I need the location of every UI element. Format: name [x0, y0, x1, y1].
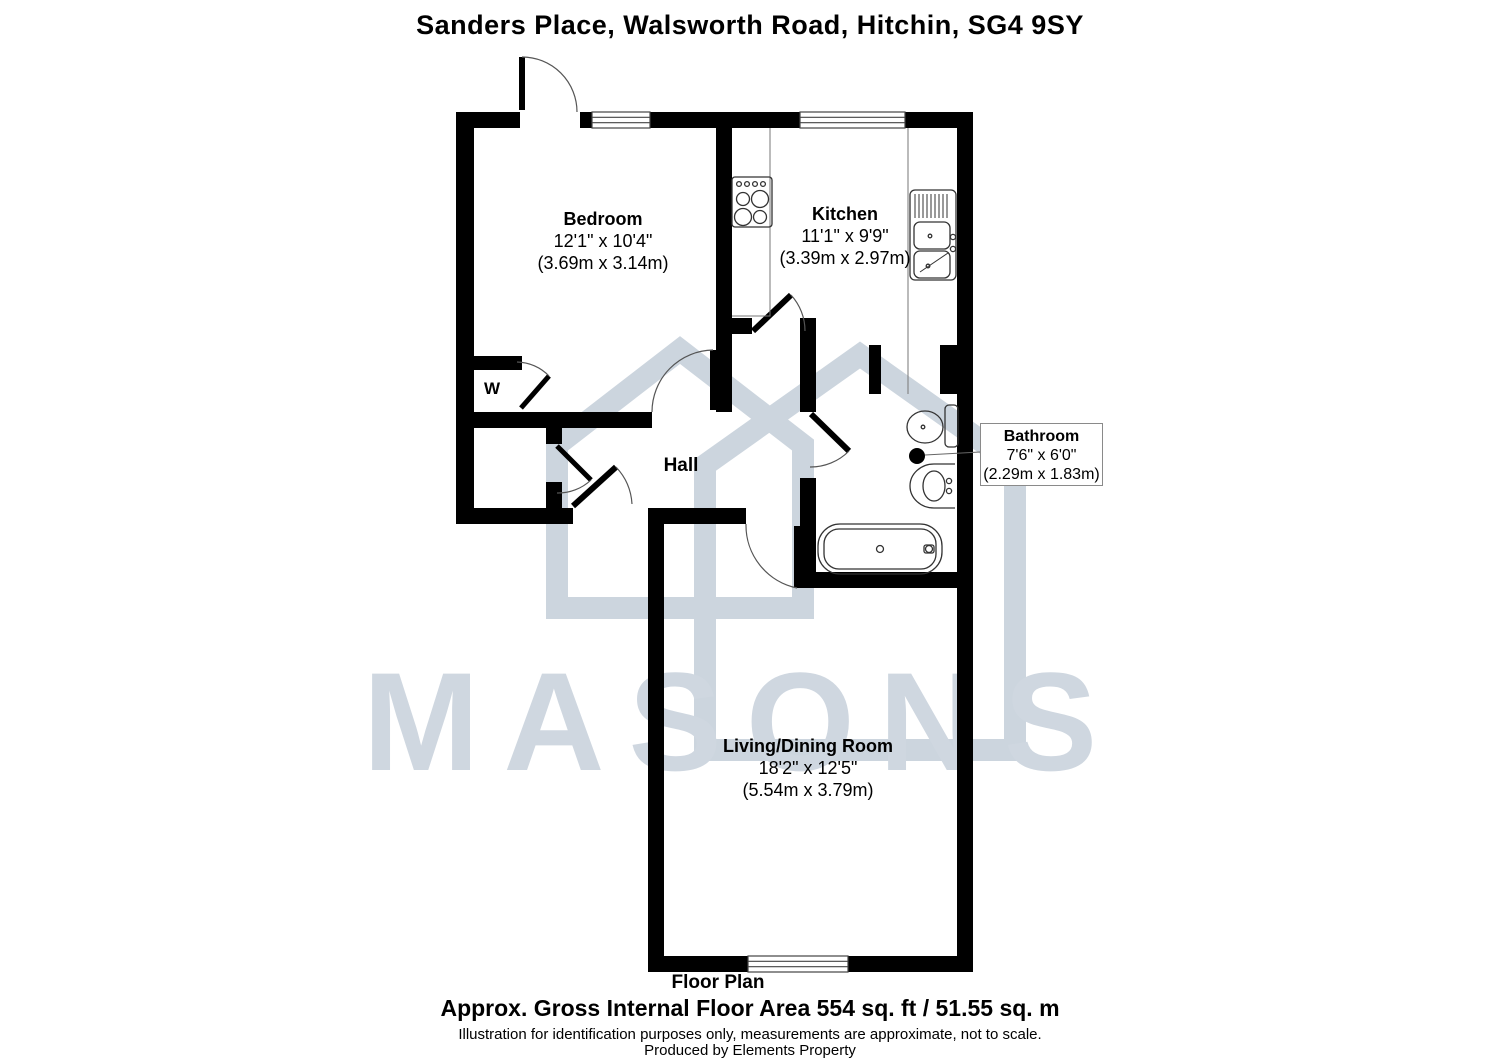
- living-room-door: [746, 524, 797, 588]
- kitchen-name: Kitchen: [745, 203, 945, 225]
- disclaimer-text: Illustration for identification purposes…: [0, 1026, 1500, 1043]
- wall-segment: [869, 345, 881, 394]
- bathroom-dims-ft: 7'6" x 6'0": [981, 446, 1102, 465]
- producer-text: Produced by Elements Property: [0, 1042, 1500, 1059]
- entrance-door: [522, 57, 577, 112]
- wall-segment: [472, 356, 522, 370]
- living-room-dims-ft: 18'2" x 12'5": [708, 757, 908, 779]
- wall-segment: [800, 478, 816, 588]
- kitchen-dims-ft: 11'1" x 9'9": [745, 225, 945, 247]
- bedroom-label: Bedroom 12'1" x 10'4" (3.69m x 3.14m): [503, 208, 703, 274]
- kitchen-label: Kitchen 11'1" x 9'9" (3.39m x 2.97m): [745, 203, 945, 269]
- wardrobe-label: W: [472, 379, 512, 399]
- wall-segment: [546, 428, 562, 444]
- bedroom-window: [592, 112, 650, 128]
- wall-segment: [716, 128, 732, 412]
- bathtub-icon: [818, 524, 942, 574]
- bathroom-name: Bathroom: [981, 427, 1102, 446]
- wall-segment: [957, 112, 973, 588]
- wall-segment: [648, 508, 664, 972]
- floorplan-page: { "title": "Sanders Place, Walsworth Roa…: [0, 0, 1500, 1060]
- living-room-label: Living/Dining Room 18'2" x 12'5" (5.54m …: [708, 735, 908, 801]
- kitchen-window: [800, 112, 905, 128]
- wall-segment: [800, 318, 816, 412]
- bedroom-name: Bedroom: [503, 208, 703, 230]
- bedroom-dims-ft: 12'1" x 10'4": [503, 230, 703, 252]
- living-room-window: [748, 956, 848, 972]
- bathroom-door: [810, 414, 849, 467]
- page-title: Sanders Place, Walsworth Road, Hitchin, …: [0, 10, 1500, 41]
- bathroom-label-box: Bathroom 7'6" x 6'0" (2.29m x 1.83m): [980, 423, 1103, 486]
- wall-segment: [648, 956, 748, 972]
- wall-segment: [732, 318, 752, 334]
- living-room-name: Living/Dining Room: [708, 735, 908, 757]
- kitchen-door: [753, 295, 805, 331]
- wall-segment: [848, 956, 973, 972]
- wall-segment: [940, 345, 957, 394]
- kitchen-dims-m: (3.39m x 2.97m): [745, 247, 945, 269]
- living-room-dims-m: (5.54m x 3.79m): [708, 779, 908, 801]
- bedroom-dims-m: (3.69m x 3.14m): [503, 252, 703, 274]
- hall-label: Hall: [631, 455, 731, 477]
- wall-segment: [456, 508, 573, 524]
- wall-segment: [650, 508, 746, 524]
- wall-segment: [650, 112, 800, 128]
- bathroom-sink-icon: [910, 464, 955, 508]
- floor-area-text: Approx. Gross Internal Floor Area 554 sq…: [0, 995, 1500, 1022]
- bathroom-dims-m: (2.29m x 1.83m): [981, 465, 1102, 484]
- wall-segment: [456, 112, 474, 524]
- floorplan-drawing: MASONS: [0, 0, 1500, 1060]
- wall-segment: [957, 588, 973, 972]
- label-connector-dot: [909, 448, 925, 464]
- wall-segment: [456, 412, 652, 428]
- floor-plan-caption: Floor Plan: [0, 972, 1468, 994]
